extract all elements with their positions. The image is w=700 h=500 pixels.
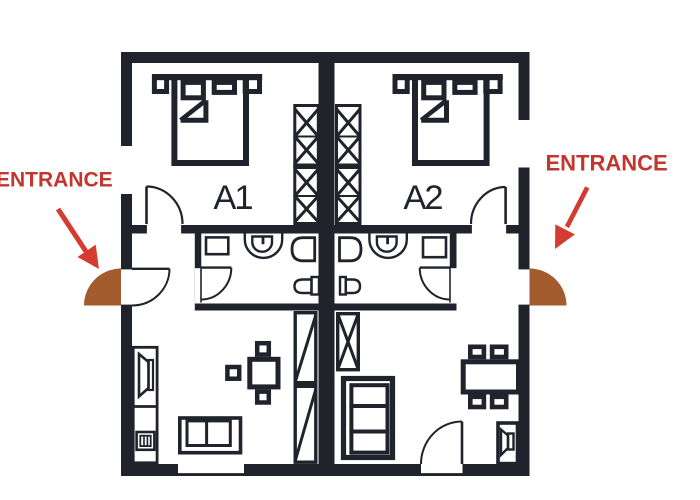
svg-text:ENTRANCE: ENTRANCE (546, 150, 668, 175)
svg-text:ENTRANCE: ENTRANCE (0, 169, 113, 192)
svg-text:A2: A2 (403, 179, 442, 217)
svg-text:A1: A1 (213, 179, 252, 217)
